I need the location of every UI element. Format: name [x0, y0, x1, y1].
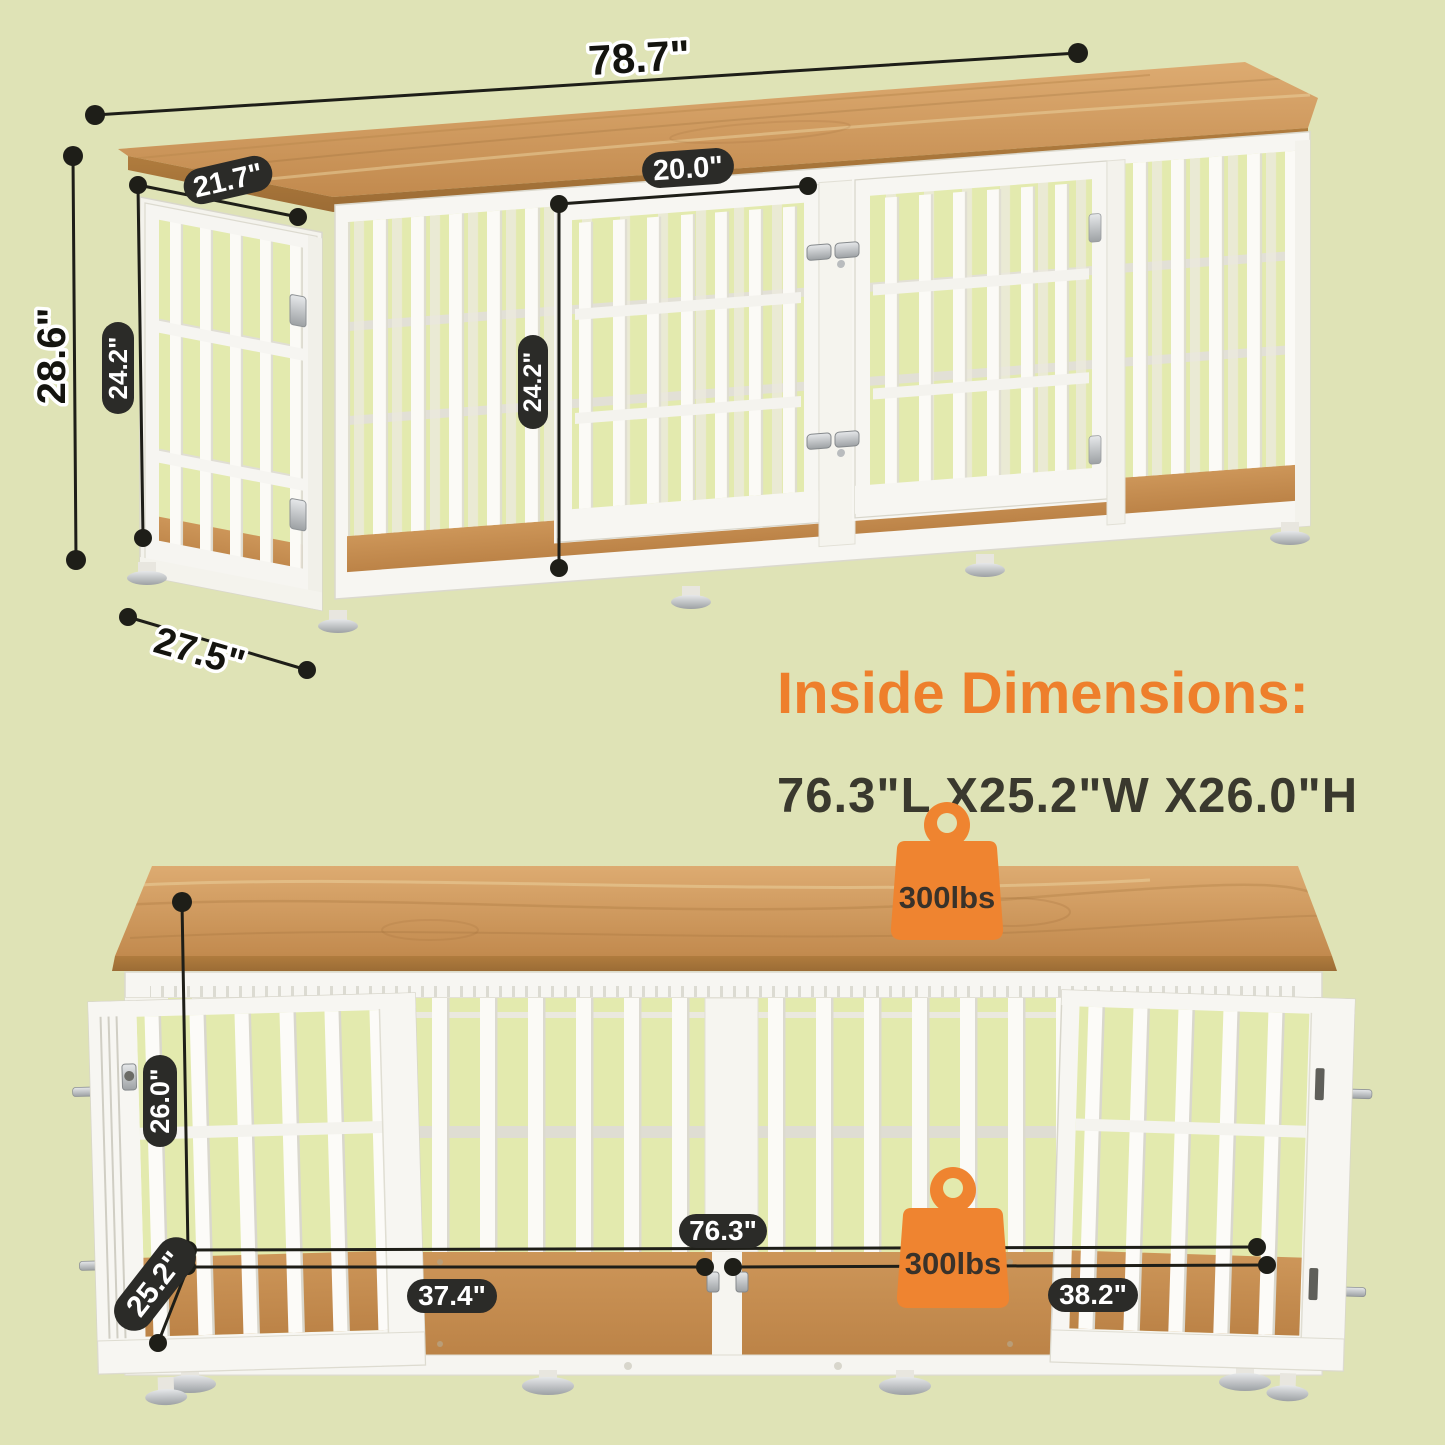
- inside-dimensions-value: 76.3"L X25.2"W X26.0"H: [777, 769, 1358, 823]
- door-foot: [1266, 1373, 1309, 1402]
- weight-capacity-floor-label: 300lbs: [905, 1246, 1002, 1281]
- hinge-bolt-icon: [1315, 1068, 1325, 1100]
- front-door-middle: [557, 185, 819, 543]
- hinge-icon: [1089, 213, 1101, 242]
- product-dimensions-infographic: 78.7" 28.6" 21.7" 24.2" 20: [0, 0, 1445, 1445]
- wood-tabletop-bottom-view: [112, 866, 1340, 971]
- dim-label-overall-width: 78.7": [587, 31, 691, 84]
- hinge-icon: [1089, 435, 1101, 464]
- front-face: [335, 132, 1310, 599]
- hinge-pin-icon: [1350, 1089, 1372, 1099]
- inside-dimensions-block: Inside Dimensions: 76.3"L X25.2"W X26.0"…: [777, 661, 1358, 823]
- svg-text:37.4": 37.4": [418, 1280, 486, 1311]
- center-post: [819, 180, 855, 547]
- bottom-view-crate: 300lbs 300lbs 26.0": [70, 802, 1375, 1407]
- dim-label-right-compartment: 38.2": [1048, 1278, 1138, 1312]
- front-door-right: [855, 161, 1107, 518]
- svg-text:78.7": 78.7": [587, 31, 691, 84]
- hinge-pin-icon: [1344, 1287, 1366, 1297]
- inside-dimensions-heading: Inside Dimensions:: [777, 661, 1309, 726]
- dim-label-middle-door-width: 20.0": [641, 147, 735, 189]
- latch-icon: [736, 1272, 748, 1292]
- wood-front-edge: [112, 956, 1337, 971]
- right-door-open: [1049, 990, 1375, 1404]
- hinge-bolt-icon: [1308, 1268, 1318, 1300]
- dim-label-left-door-height: 24.2": [102, 322, 134, 414]
- dim-label-overall-height: 28.6": [30, 308, 74, 405]
- svg-text:27.5": 27.5": [149, 620, 249, 686]
- svg-text:76.3": 76.3": [689, 1215, 757, 1246]
- svg-text:28.6": 28.6": [30, 308, 74, 405]
- dim-label-base-depth: 27.5": [149, 620, 249, 686]
- svg-text:24.2": 24.2": [103, 337, 133, 400]
- svg-text:24.2": 24.2": [519, 352, 547, 413]
- svg-text:20.0": 20.0": [652, 151, 724, 188]
- weight-capacity-top-label: 300lbs: [899, 880, 996, 915]
- dim-label-middle-door-height: 24.2": [518, 335, 548, 429]
- svg-text:38.2": 38.2": [1059, 1279, 1127, 1310]
- dim-label-inner-height: 26.0": [143, 1055, 177, 1147]
- dim-label-left-compartment: 37.4": [407, 1279, 497, 1313]
- dim-label-inner-width: 76.3": [679, 1214, 767, 1248]
- fixed-panel-bars-right: [1125, 151, 1298, 478]
- left-door-open: [70, 993, 426, 1407]
- center-divider-post: [705, 998, 758, 1252]
- svg-text:26.0": 26.0": [145, 1068, 175, 1133]
- side-face-left: [140, 197, 322, 610]
- hinge-icon: [290, 294, 306, 327]
- top-view-crate: 78.7" 28.6" 21.7" 24.2" 20: [30, 31, 1318, 685]
- infographic-canvas: 78.7" 28.6" 21.7" 24.2" 20: [0, 0, 1445, 1445]
- hinge-icon: [290, 498, 306, 531]
